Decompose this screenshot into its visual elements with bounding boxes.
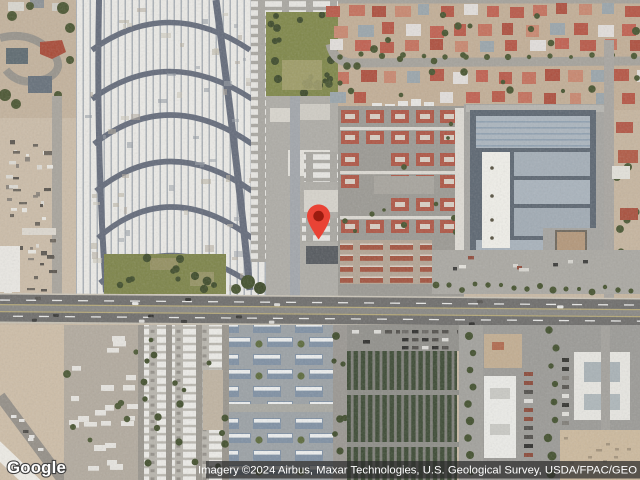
svg-text:Imagery ©2024 Airbus, Maxar Te: Imagery ©2024 Airbus, Maxar Technologies…	[198, 465, 637, 477]
svg-text:Google: Google	[7, 458, 66, 477]
